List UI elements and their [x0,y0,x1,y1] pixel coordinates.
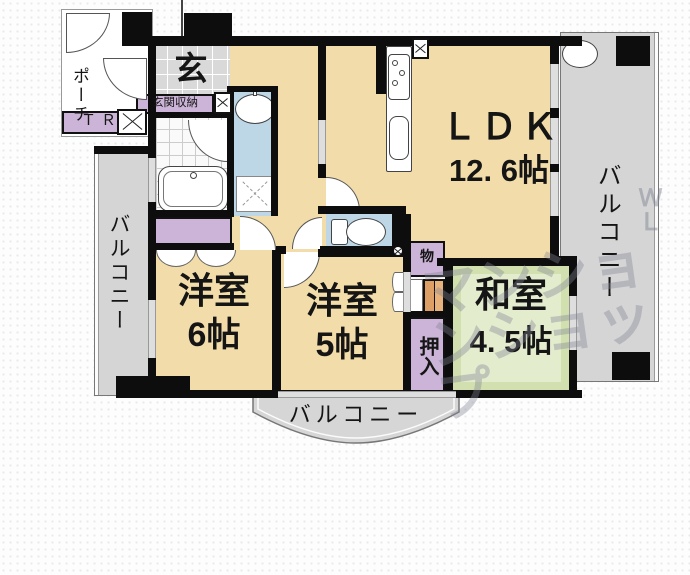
oshiire-label: 押入 [416,325,437,387]
drain-symbol [393,246,403,256]
japanese-size: 4. 5帖 [445,326,577,359]
ldk-name: ＬＤＫ [428,108,574,146]
storage-label: 物 [409,249,445,264]
opening-storage-doors [403,272,411,312]
window-bathroom [148,158,156,202]
wall-western-divider [272,250,281,398]
washbasin [235,94,275,124]
western5-size: 5帖 [281,328,403,364]
kitchen-sink [389,116,409,160]
entrance-storage-label: 玄関収納 [136,97,214,109]
floor-plan-canvas: バルコニー バルコニー バルコニー ポーチ ＴＲ 玄 玄関収納 [0,0,690,575]
toilet-bowl [346,218,386,246]
balcony-bottom-label: バルコニー [272,403,440,426]
glass-corridor-ldk [318,120,326,164]
stove-burner-3 [392,80,398,86]
trunk-room-label: ＴＲ [62,113,140,129]
balcony-left-label: バルコニー [107,168,129,378]
pipe-shaft-entrance [214,92,232,114]
pillar-balcony-right-bottom [612,352,650,380]
pillar-balcony-right-top [616,36,650,66]
storage-lower-white [409,279,423,315]
western5-name: 洋室 [281,282,403,320]
western6-name: 洋室 [156,272,272,310]
pipe-shaft-kitchen [412,38,429,59]
japanese-name: 和室 [453,276,569,314]
wall-bathroom-bottom [148,210,234,217]
washing-machine-pan [236,176,274,212]
stove-burner-2 [399,70,405,76]
wall-washroom-corridor [271,86,278,216]
hall-floor [230,44,326,90]
stove-burner-1 [392,60,398,66]
wall-closet-bottom [148,243,234,250]
pillar-balcony-left-top [94,146,154,154]
pillar-balcony-left-bottom [116,376,190,398]
bathtub-drain [190,172,197,179]
window-western6 [148,300,156,358]
wall-japanese-top [437,258,577,266]
antenna-line [181,0,183,40]
window-ldk-right-1 [550,64,559,108]
wall-top [148,36,582,46]
kitchen-wall-stub [376,42,386,94]
window-balcony-bottom [278,391,456,398]
wall-corridor-ldk-lower [318,164,326,178]
ldk-size: 12. 6帖 [418,155,580,188]
storage-wood-shelf [423,279,445,315]
wall-corridor-ldk-upper [318,44,326,120]
western6-size: 6帖 [156,318,272,354]
entrance-label: 玄 [152,52,230,87]
balcony-right-label: バルコニー [594,118,619,348]
